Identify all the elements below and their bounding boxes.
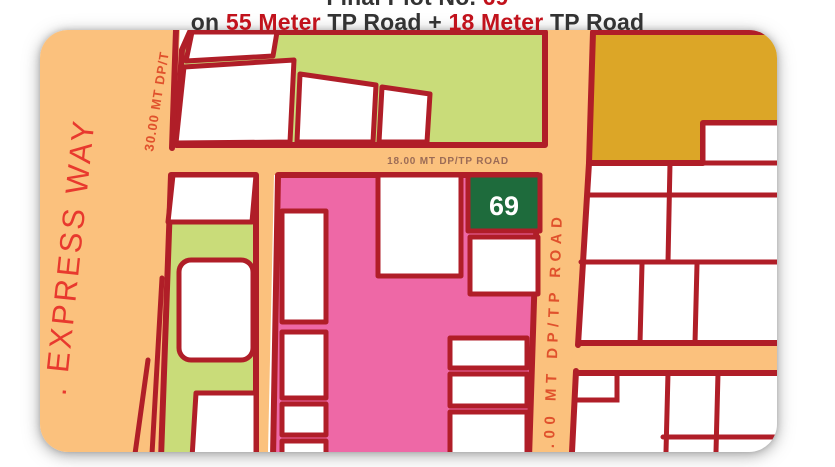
- map-svg: . EXPRESS WAY 30.00 MT DP/T 18.00 MT DP/…: [40, 30, 777, 452]
- white-plot: [282, 441, 326, 452]
- white-plot: [378, 175, 461, 276]
- white-plot: [470, 237, 538, 294]
- white-plot: [297, 74, 376, 142]
- right-block-plot-lines: [575, 163, 777, 452]
- map-card: . EXPRESS WAY 30.00 MT DP/T 18.00 MT DP/…: [40, 30, 777, 452]
- slide-title: Final Plot No. 69 on 55 Meter TP Road + …: [0, 0, 835, 35]
- slide: { "title": { "line1": { "prefix": "Final…: [0, 0, 835, 467]
- white-plot: [703, 123, 777, 163]
- road-18-label: 18.00 MT DP/TP ROAD: [387, 156, 509, 167]
- white-plot: [282, 404, 326, 435]
- white-plot: [176, 60, 294, 143]
- road-branch: [571, 345, 777, 371]
- white-plot: [179, 260, 253, 360]
- white-plot: [450, 374, 527, 406]
- title-line2: on 55 Meter TP Road + 18 Meter TP Road: [0, 10, 835, 35]
- road-30m-edge-line: [172, 30, 176, 148]
- white-plot: [282, 332, 326, 398]
- white-plot: [186, 32, 277, 61]
- white-plot: [192, 393, 256, 452]
- plot-69-label: 69: [489, 191, 519, 221]
- white-plot: [450, 412, 527, 452]
- white-plot: [168, 175, 256, 222]
- white-plot: [379, 87, 430, 142]
- white-plot: [282, 211, 326, 322]
- white-plot: [450, 338, 527, 368]
